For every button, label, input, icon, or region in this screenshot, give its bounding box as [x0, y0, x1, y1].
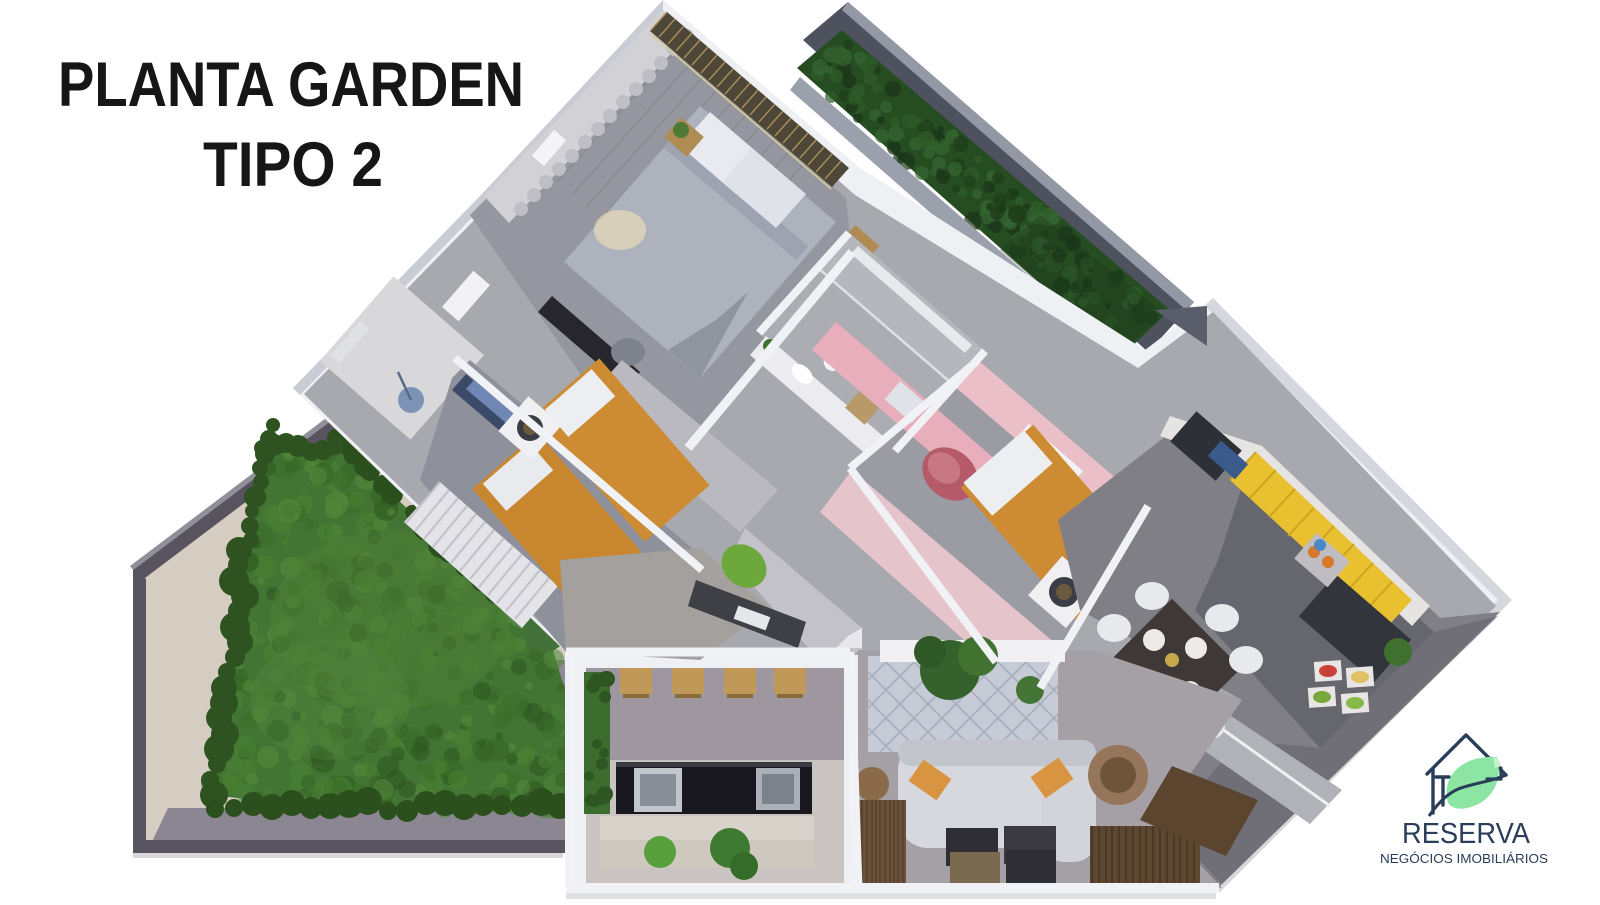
svg-text:PLANTA GARDEN: PLANTA GARDEN — [58, 50, 524, 120]
svg-text:NEGÓCIOS IMOBILIÁRIOS: NEGÓCIOS IMOBILIÁRIOS — [1380, 851, 1548, 866]
svg-text:TIPO 2: TIPO 2 — [203, 130, 383, 200]
svg-text:RESERVA: RESERVA — [1402, 818, 1531, 850]
